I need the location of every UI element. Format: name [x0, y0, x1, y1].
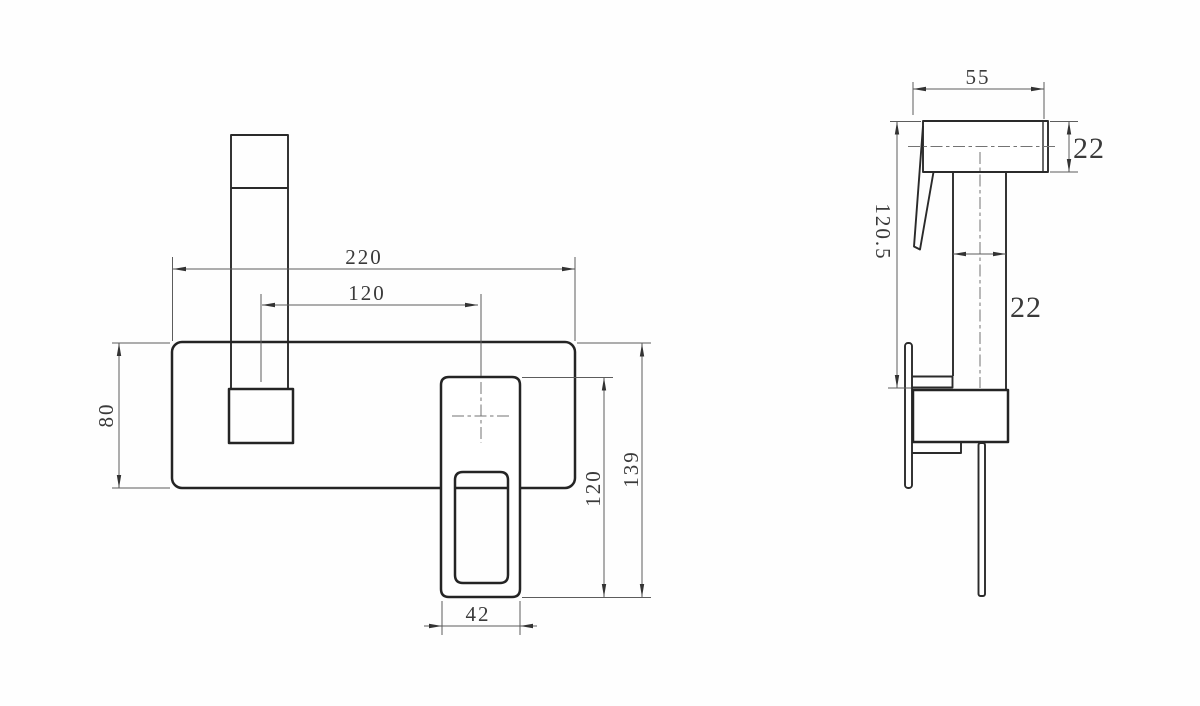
- dim-120-label: 120: [348, 281, 386, 305]
- dim-80-arrow-bottom: [117, 475, 121, 488]
- dim-handle-width: 42: [424, 601, 537, 635]
- dim-tube-width: 22: [953, 252, 1042, 324]
- dim-spout-to-handle: 120: [261, 281, 481, 382]
- dim-22t-arrow-left: [953, 252, 966, 256]
- dim-22h-arrow-top: [1067, 122, 1071, 135]
- inlet-pipe-outline: [979, 443, 986, 596]
- lower-bracket-outline: [912, 443, 961, 454]
- dim-120r-label: 120: [581, 469, 605, 507]
- dim-139-label: 139: [619, 450, 643, 488]
- dim-80-arrow-top: [117, 343, 121, 356]
- dim-head-height: 22: [1050, 122, 1105, 173]
- dim-1205-label: 120.5: [871, 203, 895, 260]
- dim-80-label: 80: [94, 403, 118, 428]
- dim-plate-height: 80: [94, 343, 170, 488]
- dim-42-label: 42: [466, 602, 491, 626]
- valve-body-outline: [913, 390, 1008, 442]
- dim-139-arrow-top: [640, 344, 644, 357]
- drawing-canvas: 220 120 80 139: [0, 0, 1200, 706]
- dim-220-label: 220: [345, 245, 383, 269]
- dim-120-arrow-right: [465, 303, 478, 307]
- side-view: 55 22 120.5 22: [871, 65, 1105, 596]
- dim-120-arrow-left: [262, 303, 275, 307]
- spout-base-square: [229, 389, 293, 443]
- dim-55-arrow-left: [913, 87, 926, 91]
- dim-42-arrow-right: [520, 624, 533, 628]
- front-view: 220 120 80 139: [94, 135, 651, 635]
- dim-1205-arrow-bottom: [895, 375, 899, 388]
- dim-120r-arrow-bottom: [602, 584, 606, 597]
- dim-120r-arrow-top: [602, 378, 606, 391]
- dim-22t-label: 22: [1010, 291, 1042, 324]
- dim-body-height: 120.5: [871, 122, 921, 389]
- dim-55-arrow-right: [1031, 87, 1044, 91]
- technical-drawing: 220 120 80 139: [0, 0, 1200, 706]
- dim-55-label: 55: [966, 65, 991, 89]
- spout-body-outline: [231, 135, 288, 389]
- dim-head-length: 55: [913, 65, 1044, 119]
- dim-42-arrow-left: [429, 624, 442, 628]
- wall-flange-outline: [905, 343, 912, 488]
- dim-139-arrow-bottom: [640, 584, 644, 597]
- upper-bracket-outline: [912, 377, 953, 388]
- dim-220-arrow-right: [562, 267, 575, 271]
- dim-22t-arrow-right: [993, 252, 1006, 256]
- dim-22h-arrow-bottom: [1067, 159, 1071, 172]
- dim-22h-label: 22: [1073, 132, 1105, 165]
- dim-1205-arrow-top: [895, 122, 899, 135]
- dim-220-arrow-left: [173, 267, 186, 271]
